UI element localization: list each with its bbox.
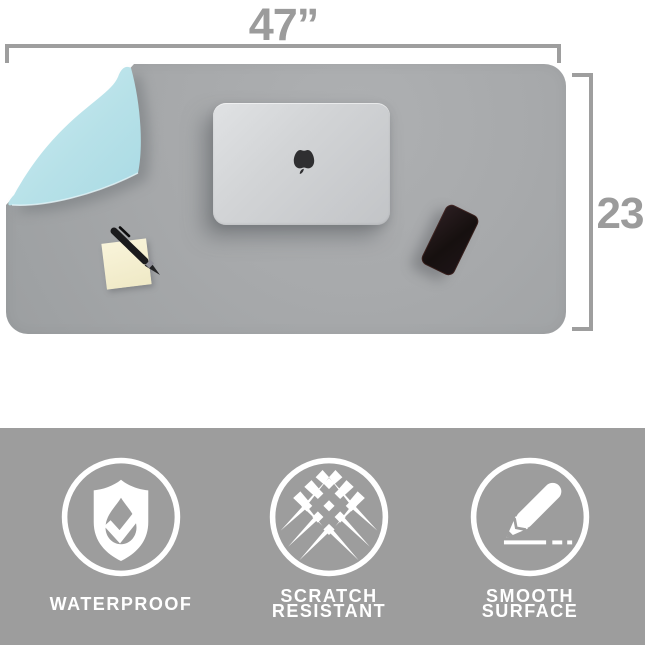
feature-label-line2: RESISTANT bbox=[219, 604, 439, 619]
feature-label: WATERPROOF bbox=[11, 588, 231, 620]
feature-label: SMOOTH SURFACE bbox=[420, 588, 640, 620]
feature-label-line2: SURFACE bbox=[420, 604, 640, 619]
product-infographic: 47” 23 bbox=[0, 0, 645, 645]
feature-label: SCRATCH RESISTANT bbox=[219, 588, 439, 620]
feature-smooth-surface: SMOOTH SURFACE bbox=[420, 455, 640, 620]
scratch-marks-icon bbox=[267, 455, 391, 579]
height-dimension-label: 23 bbox=[595, 192, 645, 236]
macbook-laptop bbox=[213, 103, 390, 225]
flipped-corner-flap bbox=[0, 55, 170, 230]
feature-waterproof: WATERPROOF bbox=[11, 455, 231, 620]
pen bbox=[100, 218, 172, 284]
shield-water-drop-check-icon bbox=[59, 455, 183, 579]
pencil-drawing-line-icon bbox=[468, 455, 592, 579]
apple-logo-icon bbox=[292, 146, 316, 176]
height-dimension-bracket bbox=[572, 73, 593, 331]
feature-scratch-resistant: SCRATCH RESISTANT bbox=[219, 455, 439, 620]
feature-label-line1: WATERPROOF bbox=[11, 597, 231, 612]
width-dimension-label: 47” bbox=[181, 2, 386, 47]
